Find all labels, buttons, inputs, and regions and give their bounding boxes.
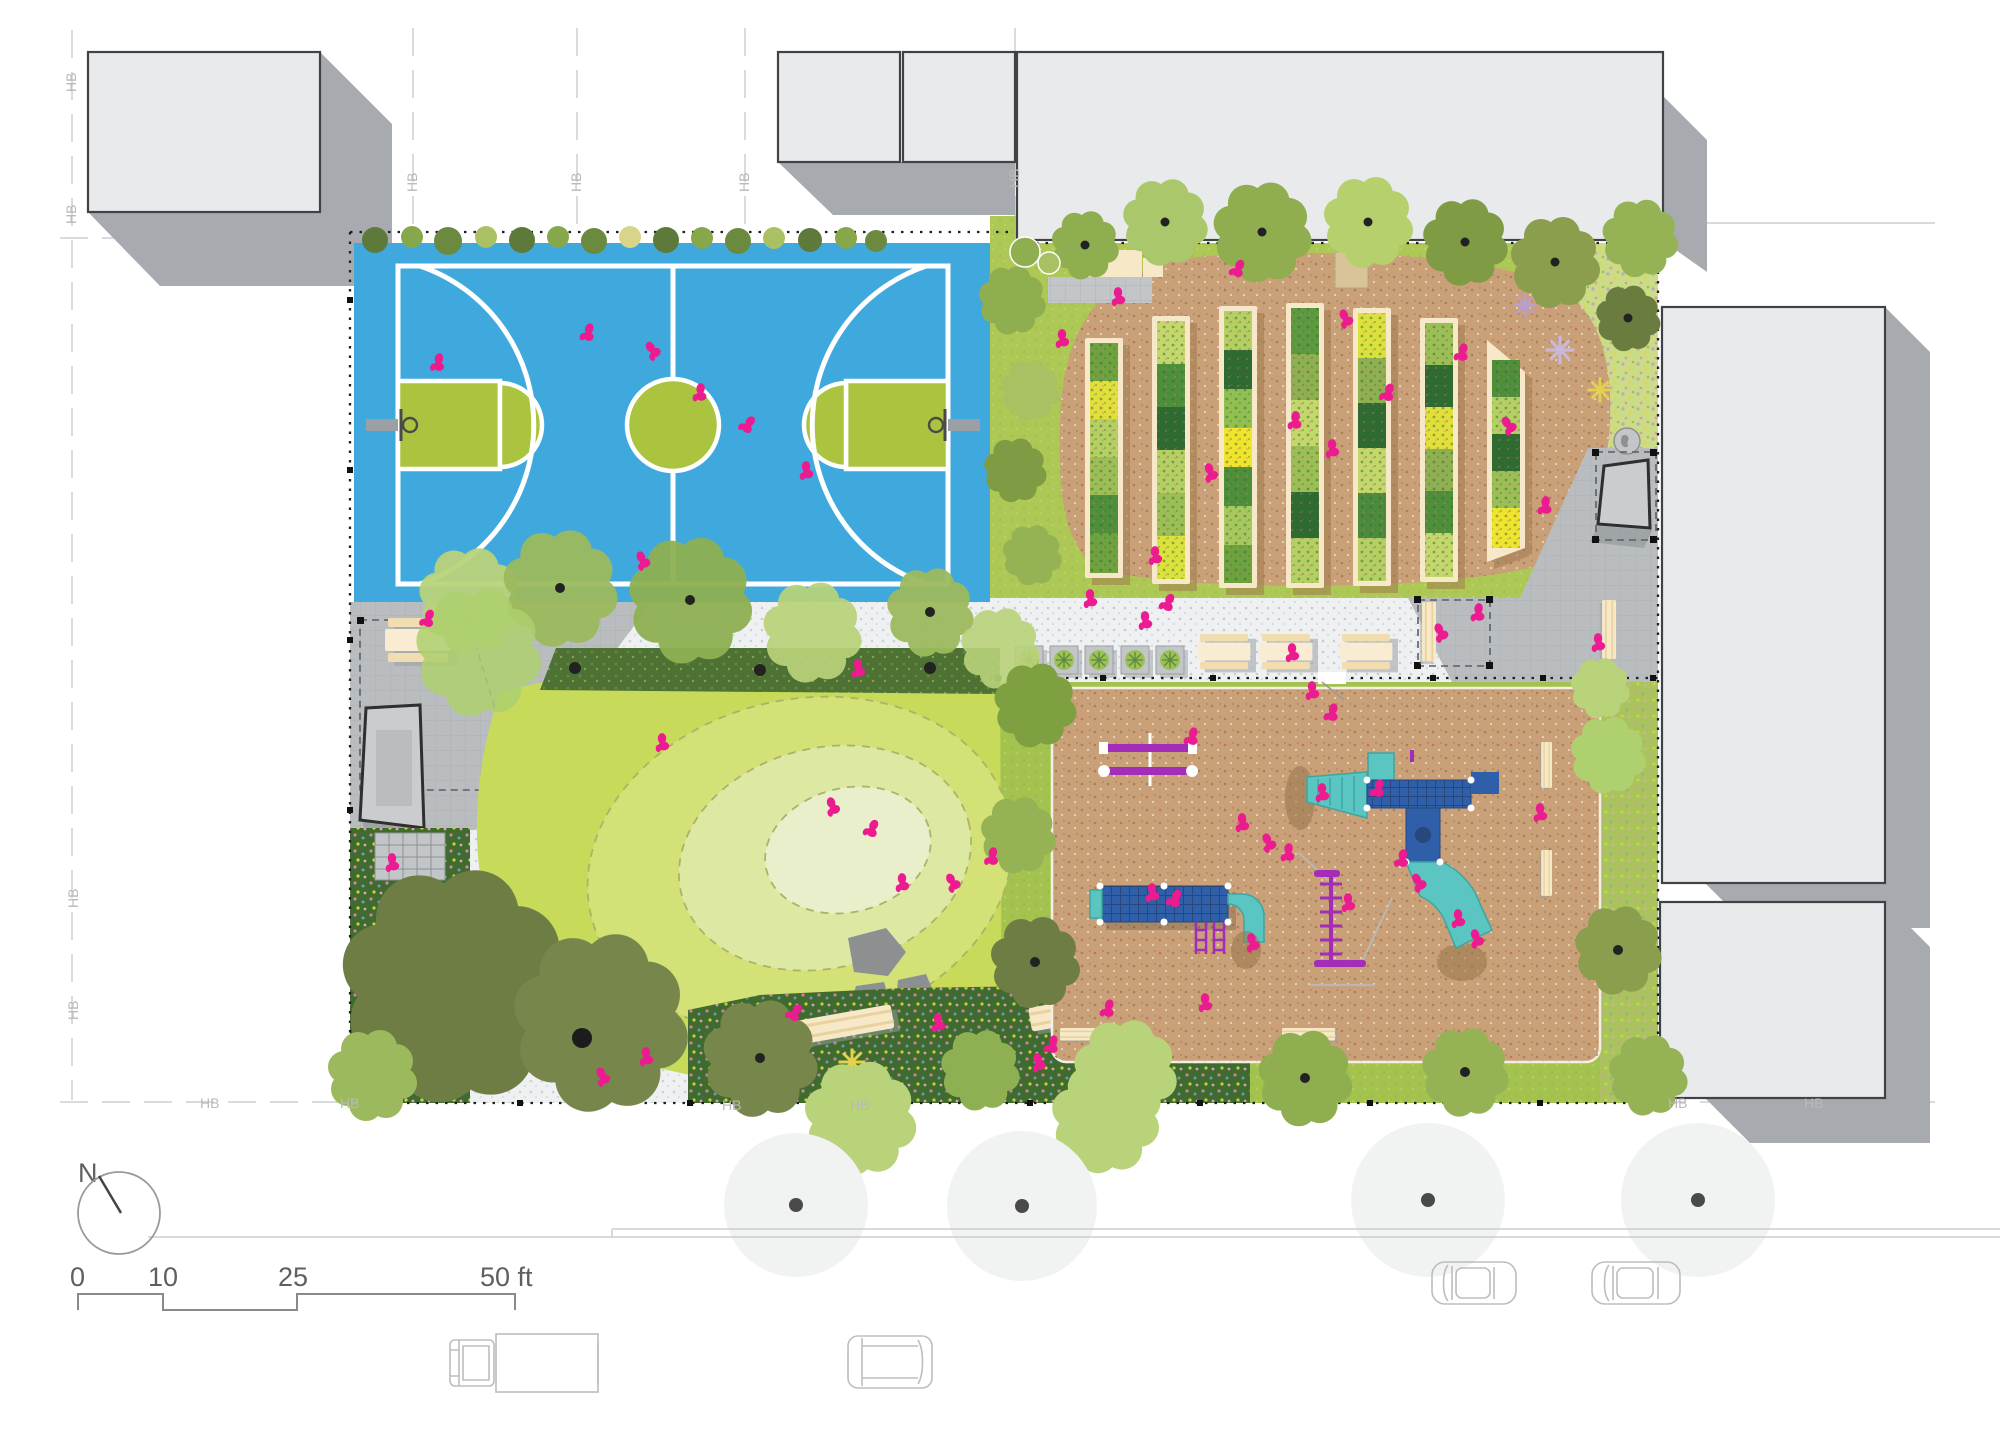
scale-tick-10: 10 — [148, 1262, 178, 1292]
court-center-circle — [627, 379, 719, 471]
bench-plaza — [1600, 600, 1616, 662]
compass-needle — [99, 1176, 121, 1213]
building-north-1 — [778, 52, 900, 162]
scale-tick-0: 0 — [70, 1262, 85, 1292]
garden-bed — [1353, 308, 1398, 593]
hb-label: HB — [340, 1095, 359, 1111]
garden-bed — [1085, 338, 1130, 585]
hb-label: HB — [200, 1095, 219, 1111]
building-east-middle — [1662, 307, 1885, 883]
scale-bar: 0 10 25 50 ft — [70, 1262, 533, 1310]
court-key-left — [398, 381, 500, 469]
planter — [1121, 646, 1153, 678]
bench-plaza — [1420, 602, 1436, 664]
planter — [1085, 646, 1117, 678]
pergola-grid-1 — [375, 833, 445, 880]
park-site-plan: N 0 10 25 50 ft HB HB HB HB HB HB HB HB … — [0, 0, 2000, 1448]
planter — [1156, 646, 1188, 678]
picnic-table — [1340, 634, 1398, 672]
north-label: N — [78, 1158, 98, 1188]
hb-label: HB — [722, 1097, 741, 1113]
building-north-2 — [903, 52, 1015, 162]
shade-structure-west-roof — [376, 730, 412, 806]
hb-label: HB — [63, 73, 79, 92]
building-northwest — [88, 52, 320, 212]
garden-bed — [1219, 306, 1264, 595]
court-key-right — [846, 381, 948, 469]
scale-tick-25: 25 — [278, 1262, 308, 1292]
playground — [1052, 688, 1600, 1062]
hb-label: HB — [736, 173, 752, 192]
hb-label: HB — [404, 173, 420, 192]
van — [848, 1336, 932, 1388]
hb-label: HB — [568, 173, 584, 192]
hb-label: HB — [65, 889, 81, 908]
hb-label: HB — [63, 205, 79, 224]
hb-label: HB — [1668, 1095, 1687, 1111]
compass-circle — [78, 1172, 160, 1254]
building-east-south — [1660, 902, 1885, 1098]
hb-label: HB — [65, 1001, 81, 1020]
hb-label: HB — [1804, 1095, 1823, 1111]
bench-playground — [1539, 742, 1552, 790]
site-plan-canvas: N 0 10 25 50 ft HB HB HB HB HB HB HB HB … — [0, 0, 2000, 1448]
garden-bed — [1487, 340, 1532, 569]
hb-label: HB — [1006, 169, 1022, 188]
climber-panel — [1368, 753, 1394, 781]
north-arrow: N — [78, 1158, 160, 1254]
bench-playground — [1539, 850, 1552, 898]
garden-bed — [1286, 303, 1331, 595]
hb-label: HB — [850, 1097, 869, 1113]
scale-bar-line — [78, 1294, 515, 1310]
scale-tick-50ft: 50 ft — [480, 1262, 533, 1292]
box-truck — [450, 1334, 598, 1392]
shade-structure-east — [1598, 460, 1650, 528]
picnic-table — [1260, 634, 1318, 672]
picnic-table — [1198, 634, 1256, 672]
street — [148, 1123, 2000, 1392]
